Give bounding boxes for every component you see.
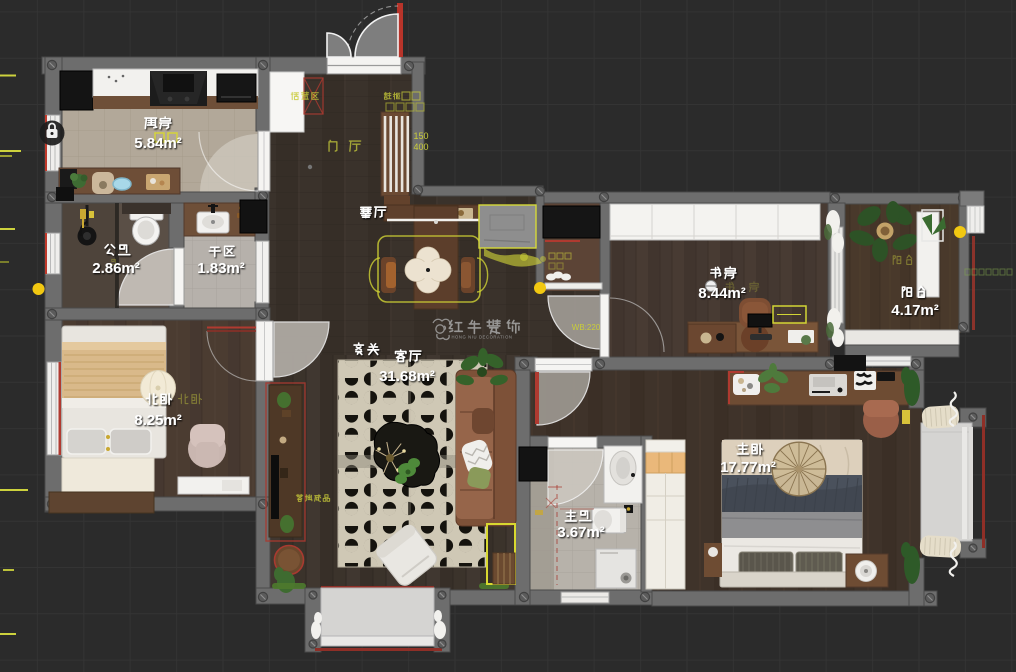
svg-text:8.44m²: 8.44m²: [698, 285, 746, 302]
svg-text:1.83m²: 1.83m²: [197, 260, 245, 277]
svg-text:17.77m²: 17.77m²: [720, 459, 776, 476]
svg-text:HONG NIU DECORATION: HONG NIU DECORATION: [451, 335, 512, 340]
svg-text:31.68m²: 31.68m²: [379, 368, 435, 385]
svg-text:150: 150: [413, 131, 428, 141]
svg-text:4.17m²: 4.17m²: [891, 302, 939, 319]
svg-text:3.67m²: 3.67m²: [557, 524, 605, 541]
svg-text:2.86m²: 2.86m²: [92, 260, 140, 277]
svg-text:5.84m²: 5.84m²: [134, 135, 182, 152]
svg-text:WB:220: WB:220: [572, 323, 601, 332]
svg-text:8.25m²: 8.25m²: [134, 412, 182, 429]
svg-text:400: 400: [413, 142, 428, 152]
